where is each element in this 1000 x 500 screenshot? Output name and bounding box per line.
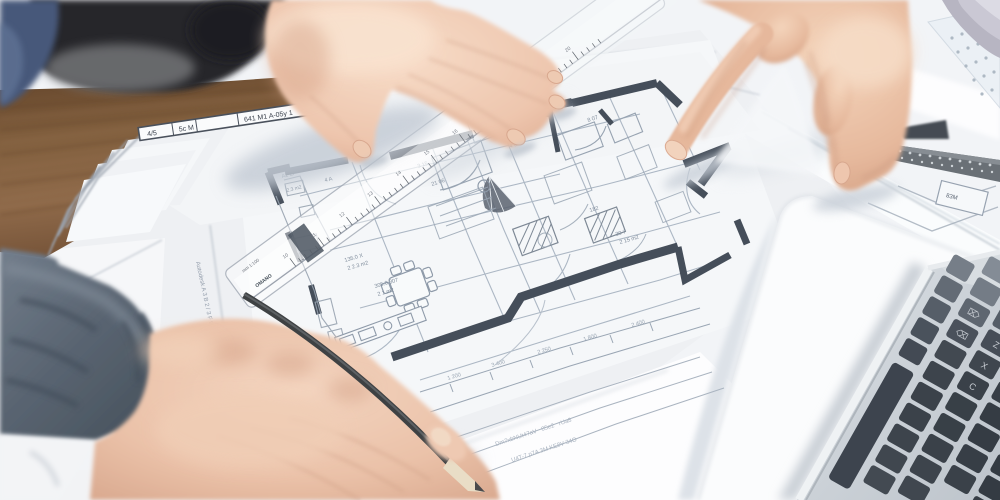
svg-text:4/5: 4/5 (147, 130, 158, 138)
